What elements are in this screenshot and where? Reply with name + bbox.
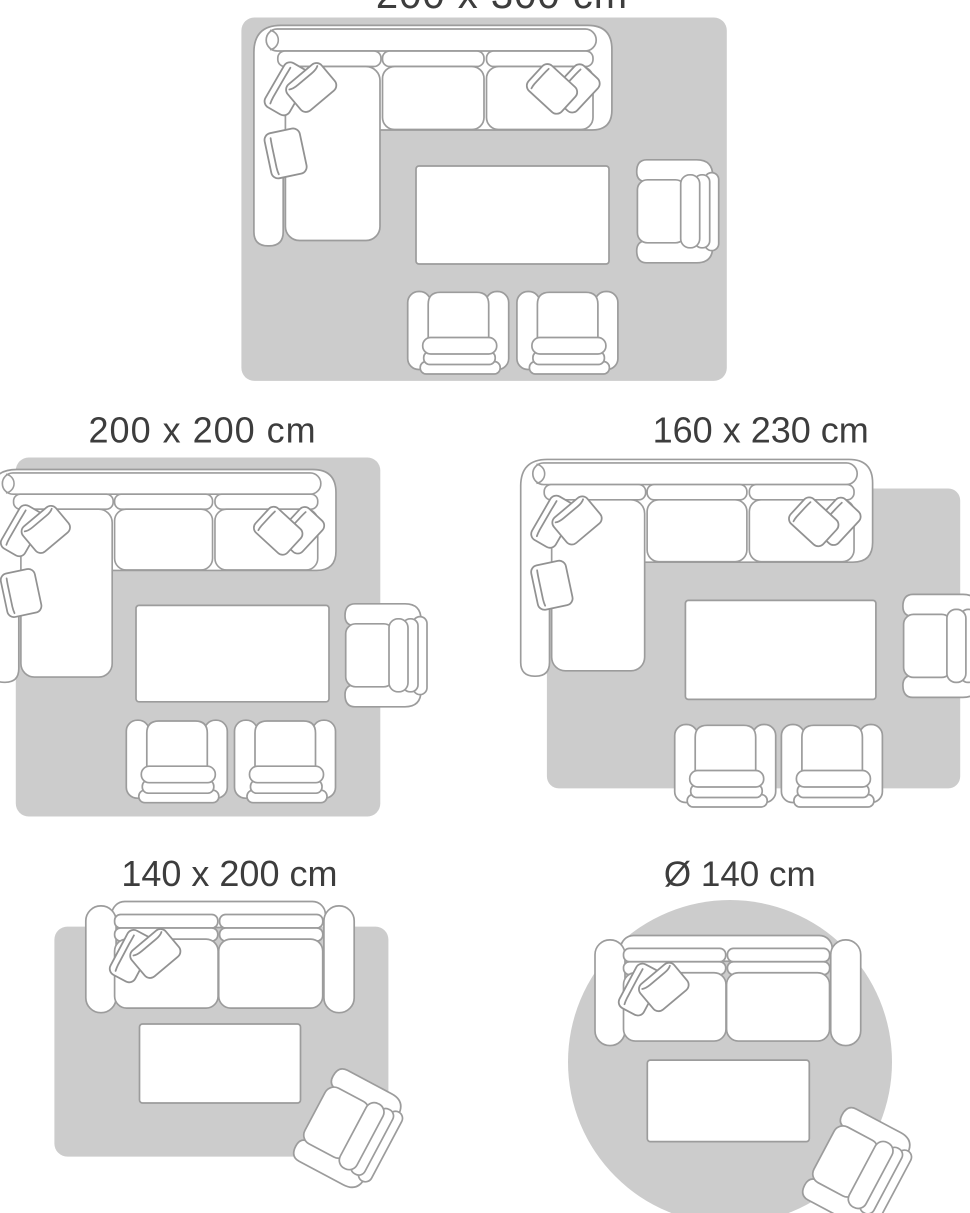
svg-text:140 x 200 cm: 140 x 200 cm <box>121 853 337 894</box>
svg-text:200 x 300 cm: 200 x 300 cm <box>376 0 628 17</box>
svg-text:Ø 140 cm: Ø 140 cm <box>664 855 816 894</box>
svg-text:200 x 200 cm: 200 x 200 cm <box>89 410 317 451</box>
svg-text:160 x 230 cm: 160 x 230 cm <box>653 410 869 451</box>
